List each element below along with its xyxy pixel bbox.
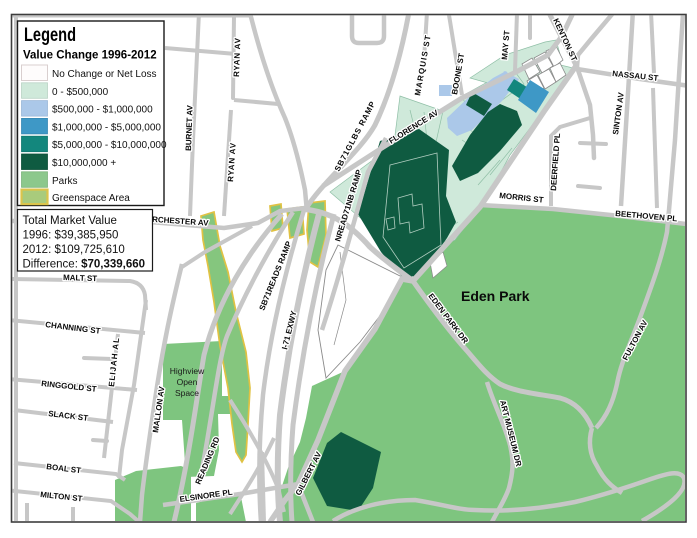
svg-text:$500,000 - $1,000,000: $500,000 - $1,000,000 [52,105,153,116]
svg-text:1996: $39,385,950: 1996: $39,385,950 [23,230,119,242]
svg-text:No Change or Net Loss: No Change or Net Loss [52,69,157,80]
svg-text:Open: Open [177,377,198,387]
svg-text:RYAN AV: RYAN AV [232,37,242,77]
svg-text:$10,000,000 +: $10,000,000 + [52,158,116,169]
svg-text:Greenspace Area: Greenspace Area [52,193,130,204]
svg-text:0 - $500,000: 0 - $500,000 [52,87,109,98]
svg-text:Total Market Value: Total Market Value [23,215,117,227]
svg-text:Eden Park: Eden Park [461,288,530,304]
svg-text:Difference: $70,339,660: Difference: $70,339,660 [23,259,146,271]
svg-text:BURNET AV: BURNET AV [184,104,195,151]
svg-text:$5,000,000 - $10,000,000: $5,000,000 - $10,000,000 [52,140,167,151]
svg-text:2012: $109,725,610: 2012: $109,725,610 [23,244,125,256]
svg-text:Legend: Legend [24,25,76,46]
svg-text:$1,000,000 - $5,000,000: $1,000,000 - $5,000,000 [52,122,161,133]
svg-text:Parks: Parks [52,176,78,187]
svg-text:Value Change 1996-2012: Value Change 1996-2012 [23,50,157,62]
svg-text:MALT ST: MALT ST [63,273,97,283]
svg-text:Space: Space [175,388,199,398]
svg-text:Highview: Highview [170,366,205,376]
